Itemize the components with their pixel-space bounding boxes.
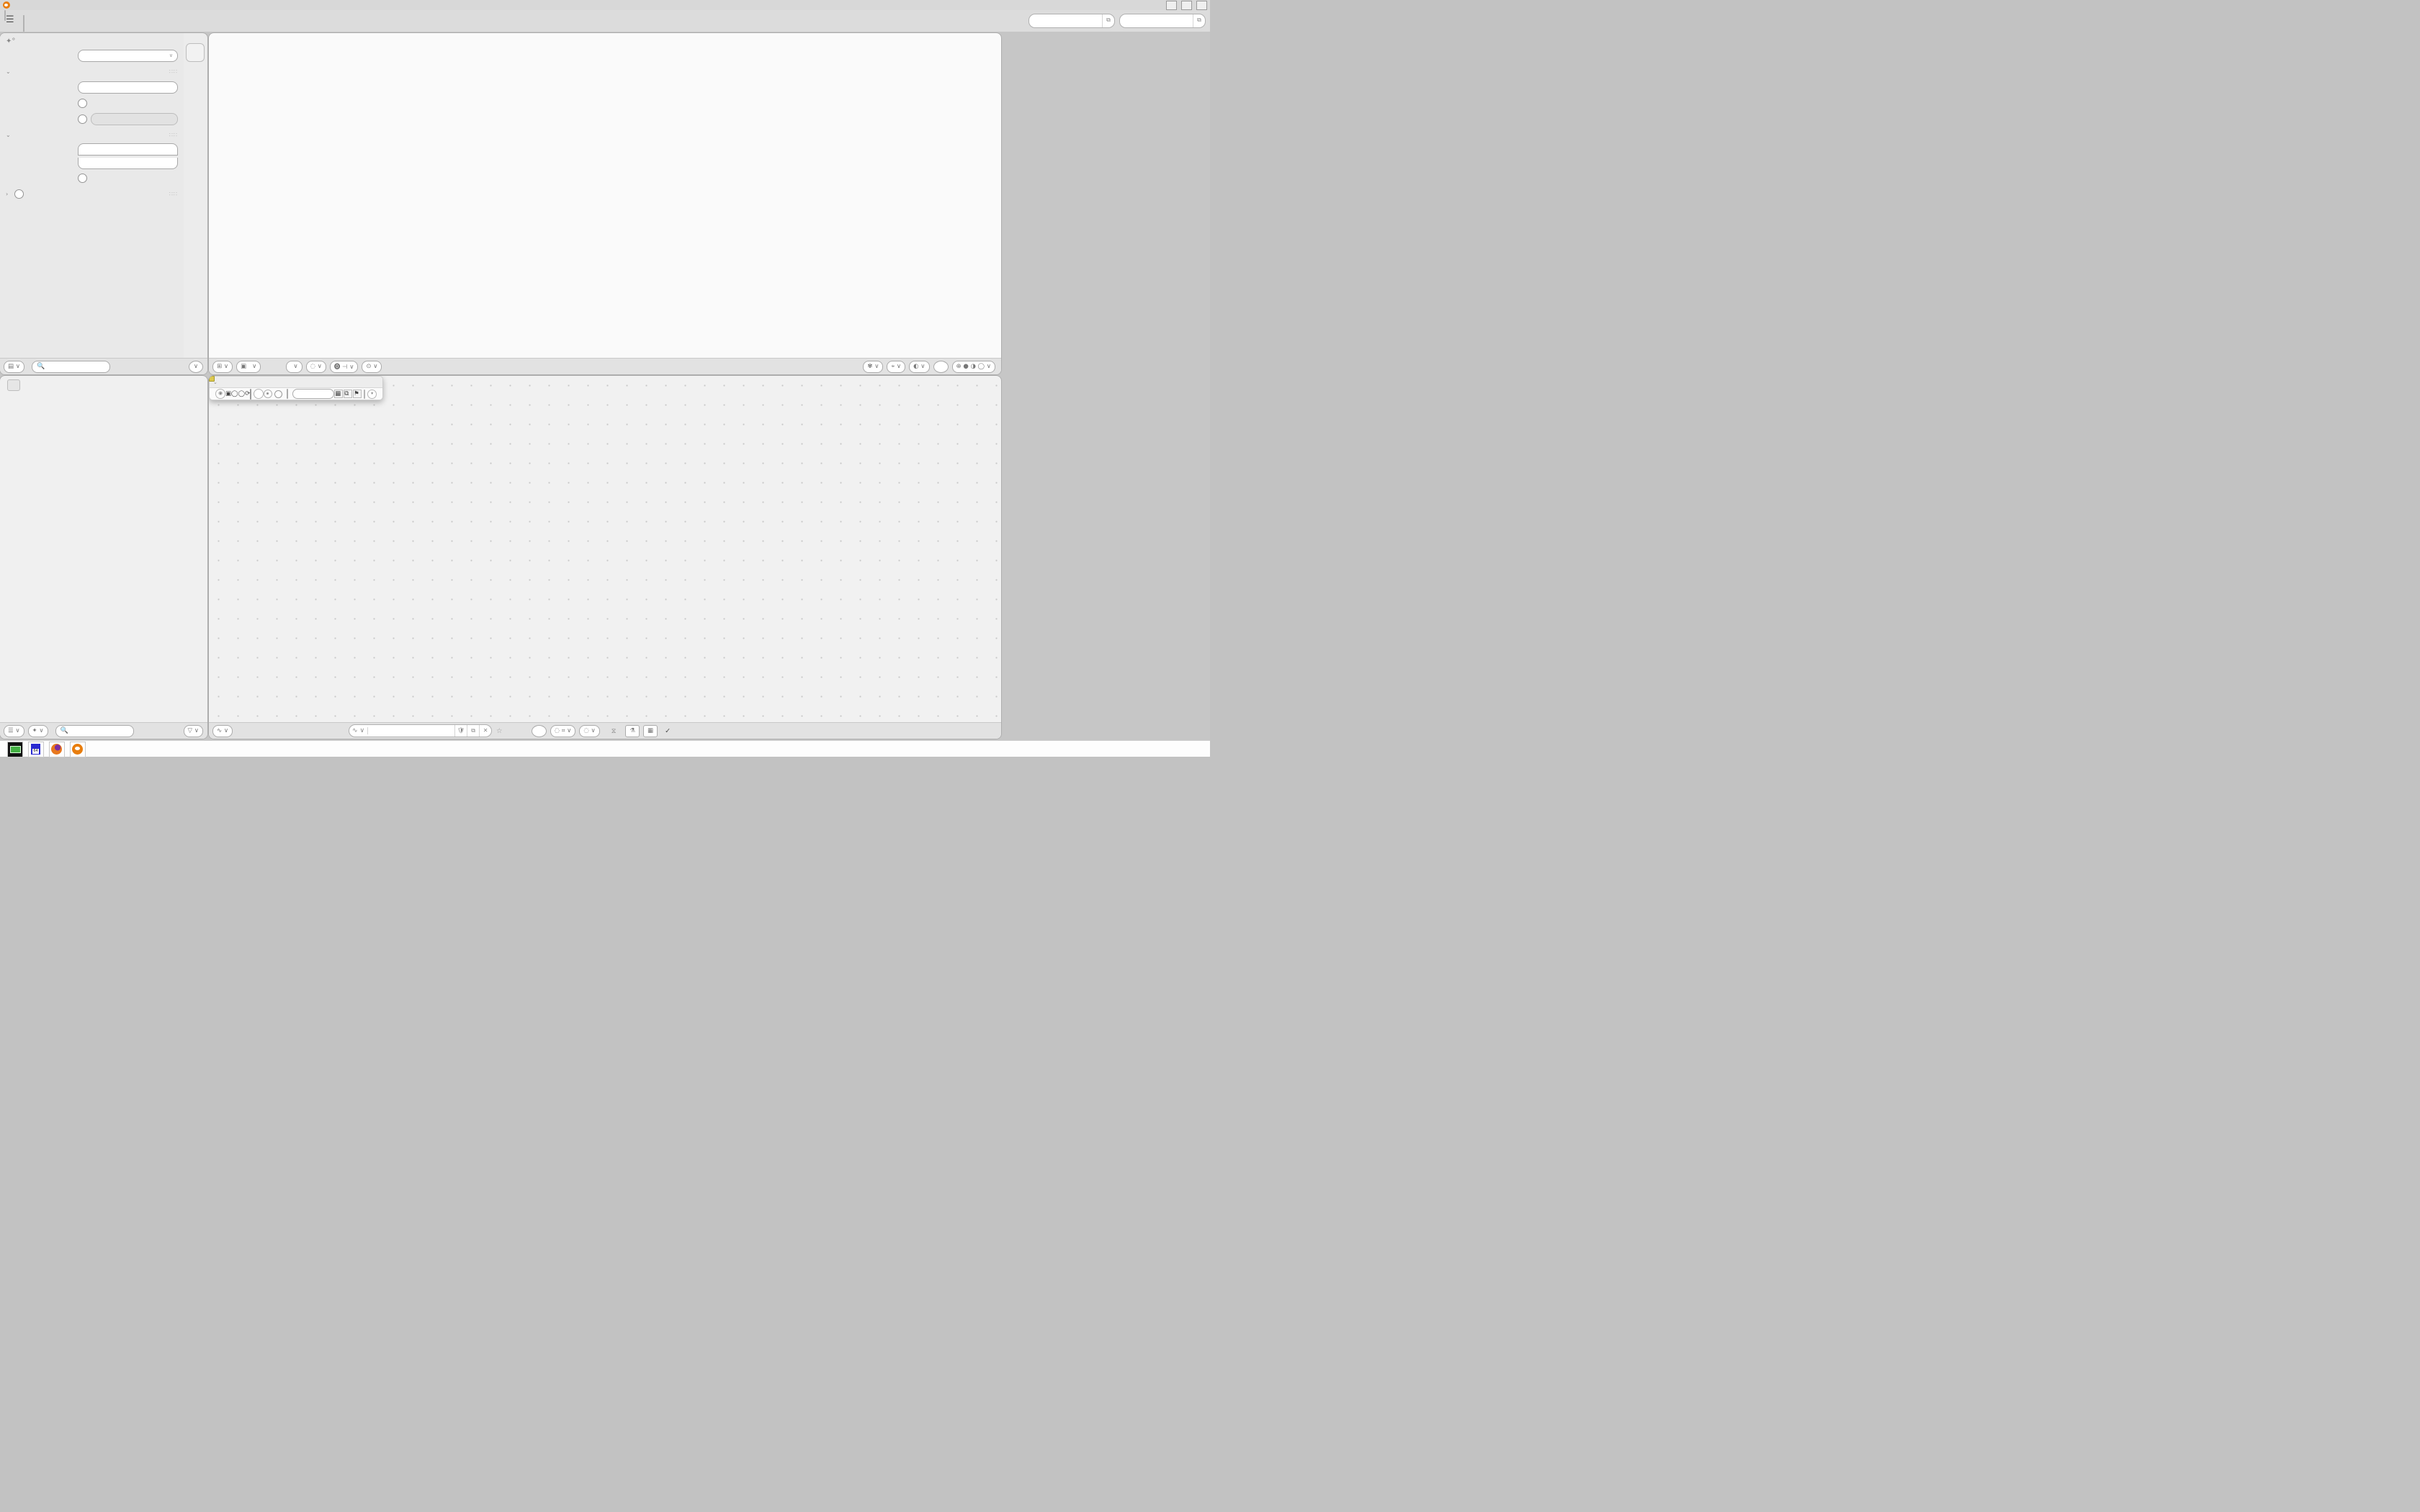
viewer-toggle-group[interactable]: ▣◯◯⟳ xyxy=(225,390,250,397)
viewport-denoising-checkbox[interactable] xyxy=(78,174,87,183)
node-editor[interactable]: ⌄ ◉ ▣◯◯⟳ xyxy=(209,376,1001,739)
editor-type-button[interactable]: ⊞ ∨ xyxy=(212,361,233,373)
viewport-header: ⊞ ∨ ▣ ∨ ∨ ◌ ∨ 🄌 ⊣ ∨ ⊙ ∨ ✾ ∨ ⌖ ∨ ◐ ∨ ⊕ ● … xyxy=(209,358,1001,374)
node-tree-name-field[interactable] xyxy=(368,725,454,737)
properties-body: ✦° ∨ ⌄ ∷∷ xyxy=(0,33,184,360)
tool-toggle-b[interactable]: ▦ xyxy=(643,725,658,737)
editor-type-button[interactable]: ☰ ∨ xyxy=(4,725,24,737)
mirrored-blender-collage: ☰ ⧉ ⧉ xyxy=(0,0,2420,1512)
proportional-edit-toggle[interactable]: ⊙ ∨ xyxy=(362,361,382,373)
viewlayer-selector[interactable]: ⧉ xyxy=(1119,14,1206,28)
blender-app-icon[interactable] xyxy=(70,742,86,757)
node-editor-header: ∿ ∨ ∿ ∨ 🛡 ⧉ ✕ ☆ ◌ ⌗ ∨ ◌ ∨ ⧖ ⚗ xyxy=(209,722,1001,739)
tool-toggle-a[interactable]: ⚗ xyxy=(625,725,640,737)
terminal-app-icon[interactable] xyxy=(7,742,23,757)
performance-histogram xyxy=(940,741,1084,757)
drag-dots-icon: ∷∷ xyxy=(169,191,178,197)
outliner-search-input[interactable]: 🔍 xyxy=(55,725,134,737)
round-button[interactable] xyxy=(532,725,547,737)
snapping-button[interactable]: ◌ ⌗ ∨ xyxy=(550,725,576,737)
section-checkbox[interactable] xyxy=(14,189,24,199)
xray-toggle[interactable]: ◐ ∨ xyxy=(909,361,929,373)
fake-user-button[interactable]: 🛡 xyxy=(454,725,467,737)
node-checkbox[interactable] xyxy=(274,390,282,398)
overlay-button[interactable]: ◌ ∨ xyxy=(579,725,599,737)
sampling-viewport-field[interactable] xyxy=(78,158,178,169)
output-socket[interactable] xyxy=(380,392,385,397)
workspace-tab-row: ☰ ⧉ ⧉ xyxy=(0,10,1210,32)
hamburger-menu-icon[interactable]: ☰ xyxy=(6,15,19,25)
editor-type-button[interactable]: ▤ ∨ xyxy=(4,361,24,373)
node[interactable]: ⌄ ◉ ▣◯◯⟳ xyxy=(209,376,383,400)
drag-dots-icon: ∷∷ xyxy=(169,132,178,138)
bake-button[interactable] xyxy=(250,389,251,400)
properties-tab-icon[interactable] xyxy=(186,43,205,62)
workspace-tab[interactable] xyxy=(23,15,24,32)
properties-editor-icon: ✦° xyxy=(6,37,15,45)
processing-check-icon[interactable]: ✓ xyxy=(665,727,671,735)
pivot-select[interactable]: ◌ ∨ xyxy=(306,361,326,373)
overlays-toggle[interactable]: ⌖ ∨ xyxy=(887,361,905,373)
minimize-button[interactable] xyxy=(1166,1,1177,10)
color-swatch[interactable] xyxy=(364,390,365,399)
viewlayer-copy-button[interactable]: ⧉ xyxy=(1193,14,1205,27)
collapsed-section-row[interactable]: › ∷∷ xyxy=(0,186,184,202)
eye-button[interactable]: ◉ xyxy=(215,389,225,399)
unlink-button[interactable]: ✕ xyxy=(479,725,491,737)
filter-size-field[interactable] xyxy=(78,81,178,94)
px-field[interactable] xyxy=(292,389,334,399)
overscan-checkbox[interactable] xyxy=(78,114,87,124)
outliner-left: ☰ ∨ ✦ ∨ 🔍 ▽ ∨ xyxy=(0,376,207,739)
outliner-row[interactable] xyxy=(0,379,207,391)
mode-select[interactable]: ▣ ∨ xyxy=(236,361,261,373)
shading-mode-group[interactable]: ⊕ ● ◑ ◯ ∨ xyxy=(952,361,996,373)
scene-name-field[interactable] xyxy=(1036,14,1102,27)
gizmo-toggle[interactable]: ✾ ∨ xyxy=(863,361,883,373)
scene-copy-button[interactable]: ⧉ xyxy=(1102,14,1114,27)
viewlayer-name-field[interactable] xyxy=(1126,14,1193,27)
firefox-app-icon[interactable] xyxy=(49,742,65,757)
sampling-render-field[interactable] xyxy=(78,143,178,156)
window-controls xyxy=(1166,1,1207,10)
floppy64-app-icon[interactable]: 64 xyxy=(28,742,44,757)
socket-dropdown-icon[interactable]: ▾ xyxy=(367,390,377,399)
outliner-header: ☰ ∨ ✦ ∨ 🔍 ▽ ∨ xyxy=(0,722,207,739)
value-field[interactable] xyxy=(287,389,288,399)
restore-button[interactable] xyxy=(1181,1,1192,10)
windows-taskbar: 64 xyxy=(0,740,1210,757)
viewport-menus xyxy=(261,363,269,371)
bake-options-icon[interactable] xyxy=(254,389,264,399)
reroute-node[interactable] xyxy=(209,376,215,382)
snap-toggle[interactable]: 🄌 ⊣ ∨ xyxy=(330,361,359,373)
workspace-tabs xyxy=(23,14,24,32)
properties-tab-strip xyxy=(184,43,206,62)
boxed-icon[interactable] xyxy=(7,379,20,391)
overscan-field[interactable] xyxy=(91,113,178,125)
input-socket[interactable] xyxy=(209,392,212,397)
render-preview-button[interactable] xyxy=(933,361,949,373)
field-toggle-icon[interactable] xyxy=(264,390,272,398)
properties-editor-left: ✦° ∨ ⌄ ∷∷ xyxy=(0,33,207,374)
close-button[interactable] xyxy=(1196,1,1207,10)
swatch-icon[interactable]: ⚑ xyxy=(353,390,362,398)
swatch-icon[interactable]: ⧉ xyxy=(344,390,352,398)
viewport-stats xyxy=(218,71,255,82)
editor-type-button[interactable]: ∿ ∨ xyxy=(212,725,233,737)
taskbar-apps: 64 xyxy=(7,742,86,757)
transparent-checkbox[interactable] xyxy=(78,99,87,108)
render-engine-select[interactable]: ∨ xyxy=(78,50,178,62)
fractal-mesh-preview xyxy=(209,33,1001,359)
node-tree-selector[interactable]: ∿ ∨ 🛡 ⧉ ✕ xyxy=(349,724,492,737)
title-bar xyxy=(0,0,1210,10)
options-button[interactable]: ∨ xyxy=(189,361,203,373)
collapsed-sections: › ∷∷ xyxy=(0,186,184,202)
display-mode-button[interactable]: ✦ ∨ xyxy=(28,725,48,737)
properties-search-input[interactable]: 🔍 xyxy=(32,361,110,373)
dna-icon: ⧖ xyxy=(611,727,617,735)
blender-window: ☰ ⧉ ⧉ xyxy=(0,0,1210,756)
outliner-tree xyxy=(0,376,207,391)
drag-dots-icon: ∷∷ xyxy=(169,68,178,75)
node-tree-icon: ∿ ∨ xyxy=(349,727,368,734)
performance-stats xyxy=(786,744,790,751)
blender-logo-icon xyxy=(3,1,10,9)
new-copy-button[interactable]: ⧉ xyxy=(467,725,479,737)
star-icon[interactable]: ☆ xyxy=(496,727,503,735)
node-menus xyxy=(233,727,241,735)
swatch-icon[interactable]: ▦ xyxy=(334,390,343,398)
node-title-bar[interactable]: ⌄ xyxy=(210,377,382,388)
stat-row xyxy=(218,71,255,82)
scene-selector[interactable]: ⧉ xyxy=(1028,14,1115,28)
viewport-3d[interactable]: ⊞ ∨ ▣ ∨ ∨ ◌ ∨ 🄌 ⊣ ∨ ⊙ ∨ ✾ ∨ ⌖ ∨ ◐ ∨ ⊕ ● … xyxy=(209,33,1001,374)
filter-button[interactable]: ▽ ∨ xyxy=(184,725,203,737)
node-row[interactable]: ◉ ▣◯◯⟳ ▦ ⧉ ⚑ xyxy=(210,388,382,400)
properties-header: ▤ ∨ 🔍 ∨ xyxy=(0,358,207,374)
orientation-select[interactable]: ∨ xyxy=(286,361,302,373)
node-wires xyxy=(209,376,1001,723)
